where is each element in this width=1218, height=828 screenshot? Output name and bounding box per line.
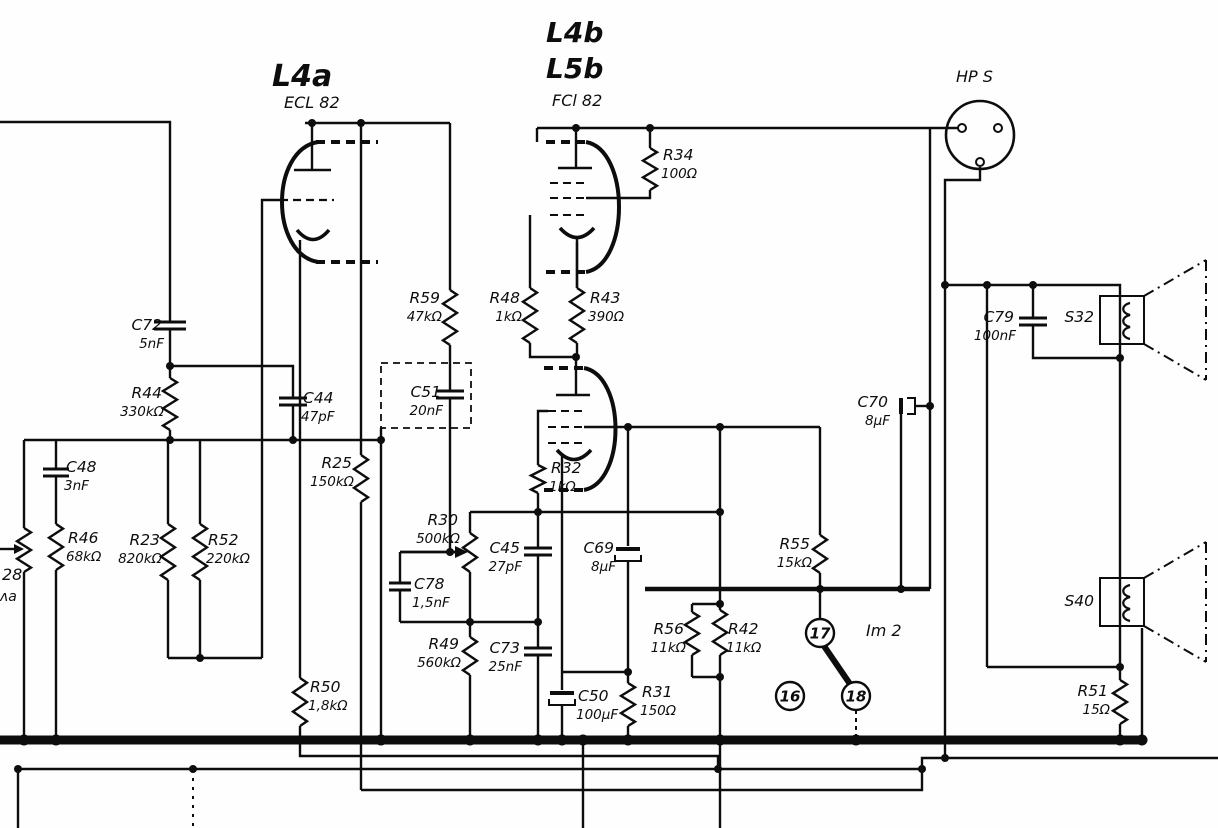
label-R50: R50 (310, 678, 341, 696)
value-C72: 5nF (139, 336, 164, 352)
speaker-S40 (1100, 542, 1206, 662)
label-R56: R56 (654, 620, 685, 638)
tube-l5b-name: L5b (546, 52, 603, 85)
voice-coil (1123, 585, 1130, 621)
label-R52: R52 (208, 531, 239, 549)
resistor-R59 (443, 290, 457, 345)
resistor-R46 (49, 524, 63, 570)
schematic-canvas: L4aECL 82L4bL5bFCl 82HP SIm 228ʌaC725nFR… (0, 0, 1218, 828)
switch-lever (824, 646, 850, 684)
value-R48: 1kΩ (495, 309, 522, 325)
svg-text:17: 17 (810, 625, 831, 643)
hps-pin (958, 124, 966, 132)
value-R49: 560kΩ (417, 655, 462, 671)
resistor-R31 (621, 683, 635, 726)
resistor-R55 (813, 535, 827, 573)
label-R34: R34 (663, 146, 694, 164)
resistor-R56 (685, 612, 699, 655)
resistor-R50 (293, 678, 307, 726)
value-R44: 330kΩ (120, 404, 165, 420)
label-C44: C44 (303, 389, 334, 407)
resistor-R48 (523, 288, 537, 343)
electrolytic-C70 (901, 398, 930, 589)
label-C48: C48 (66, 458, 97, 476)
terminal-16: 16 (776, 682, 804, 710)
value-R34: 100Ω (661, 166, 698, 182)
svg-text:16: 16 (780, 688, 801, 706)
label-C45: C45 (489, 539, 520, 557)
label-R31: R31 (642, 683, 673, 701)
capacitor-C78 (389, 583, 411, 590)
label-R43: R43 (590, 289, 621, 307)
label-C78: C78 (414, 575, 445, 593)
value-R43: 390Ω (588, 309, 625, 325)
label-S40: S40 (1064, 592, 1094, 610)
tube-L4a-triode (280, 142, 378, 262)
resistor-R51 (1113, 680, 1127, 724)
value-R56: 11kΩ (651, 640, 687, 656)
value-R55: 15kΩ (777, 555, 813, 571)
svg-text:18: 18 (846, 688, 867, 706)
resistor-R42 (713, 610, 727, 655)
label-R59: R59 (410, 289, 441, 307)
resistor-R34 (643, 148, 657, 190)
value-C69: 8μF (591, 559, 616, 575)
value-R50: 1,8kΩ (308, 698, 348, 714)
label-R32: R32 (551, 459, 582, 477)
junction-dots (14, 119, 1148, 773)
label-R46: R46 (68, 529, 99, 547)
resistors (17, 148, 1127, 726)
schematic-page: L4aECL 82L4bL5bFCl 82HP SIm 228ʌaC725nFR… (0, 0, 1218, 828)
capacitor-C73 (524, 648, 552, 655)
voice-coil (1123, 303, 1130, 339)
tube-L4b-triode (546, 142, 619, 288)
hps-pin (994, 124, 1002, 132)
value-R51: 15Ω (1083, 702, 1111, 718)
label-R30: R30 (428, 511, 459, 529)
label-R23: R23 (130, 531, 161, 549)
label-R55: R55 (780, 535, 811, 553)
value-C48: 3nF (64, 478, 89, 494)
label-C72: C72 (131, 316, 162, 334)
value-C78: 1,5nF (412, 595, 450, 611)
value-R46: 68kΩ (66, 549, 102, 565)
resistor-R44 (163, 378, 177, 430)
label-R25: R25 (322, 454, 353, 472)
electrolytic-C50 (549, 693, 575, 705)
value-C70: 8μF (865, 413, 890, 429)
label-R42: R42 (728, 620, 759, 638)
label-R49: R49 (429, 635, 460, 653)
value-C73: 25nF (489, 659, 523, 675)
tube-l4b-type: FCl 82 (552, 91, 602, 110)
tube-l4a-name: L4a (272, 59, 332, 94)
terminal-18: 18 (842, 682, 870, 710)
value-R31: 150Ω (640, 703, 677, 719)
resistor-R52 (193, 524, 207, 580)
label-R48: R48 (490, 289, 521, 307)
speaker-S32 (1100, 260, 1206, 380)
electrolytic-C69 (615, 549, 641, 561)
value-R52: 220kΩ (206, 551, 251, 567)
value-C44: 47pF (301, 409, 335, 425)
label-C73: C73 (489, 639, 520, 657)
tube-l4b-name: L4b (546, 16, 603, 49)
value-C79: 100nF (974, 328, 1016, 344)
label-C70: C70 (857, 393, 888, 411)
resistor-R25 (354, 455, 368, 502)
capacitor-C79 (1019, 318, 1047, 325)
resistor-R43 (570, 288, 584, 343)
value-R30: 500kΩ (416, 531, 461, 547)
value-C50: 100μF (576, 707, 618, 723)
value-R23: 820kΩ (118, 551, 163, 567)
terminal-17: 17 (806, 619, 834, 647)
label-S32: S32 (1064, 308, 1094, 326)
switch-label: Im 2 (866, 621, 902, 640)
value-R42: 11kΩ (726, 640, 762, 656)
resistor-R32 (531, 465, 545, 493)
hps-connector (946, 101, 1014, 169)
value-R25: 150kΩ (310, 474, 355, 490)
label-R44: R44 (132, 384, 163, 402)
label-R51: R51 (1078, 682, 1109, 700)
capacitor-C45 (524, 548, 552, 555)
value-R59: 47kΩ (407, 309, 443, 325)
label-C51: C51 (410, 383, 441, 401)
resistor-R49 (463, 637, 477, 675)
value-C51: 20nF (410, 403, 444, 419)
resistor-R23 (161, 524, 175, 580)
pot-value-partial: ʌa (0, 589, 17, 605)
value-C45: 27pF (488, 559, 522, 575)
pot-ref-partial: 28 (2, 565, 22, 584)
label-C69: C69 (583, 539, 614, 557)
hps-connector-label: HP S (956, 67, 993, 86)
label-C79: C79 (983, 308, 1014, 326)
value-R32: 1kΩ (549, 479, 576, 495)
label-C50: C50 (578, 687, 609, 705)
tube-l4a-type: ECL 82 (284, 93, 340, 112)
hps-pin (976, 158, 984, 166)
